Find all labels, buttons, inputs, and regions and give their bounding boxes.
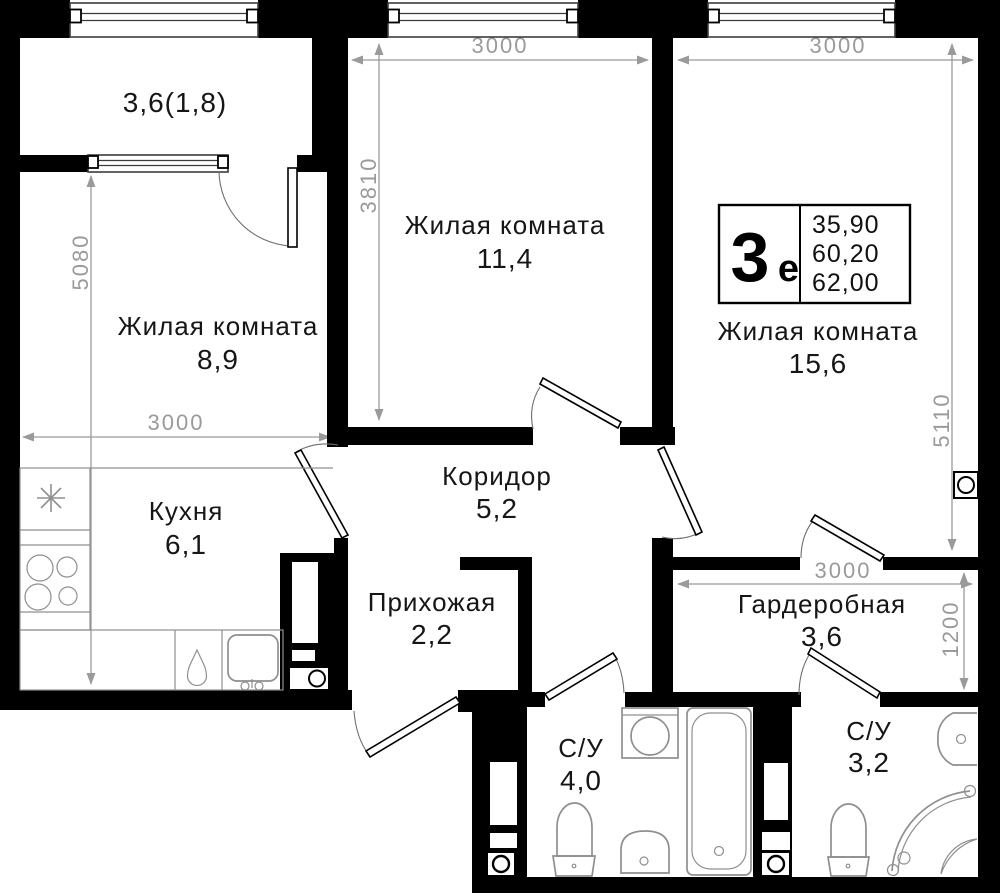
corridor-area-label: 5,2 bbox=[476, 493, 518, 524]
unit-type-suffix: е bbox=[778, 248, 799, 290]
hallway-area-label: 2,2 bbox=[411, 619, 453, 650]
wall bbox=[880, 692, 978, 707]
wall bbox=[297, 155, 330, 172]
dim-living-left-width: 3000 bbox=[148, 410, 205, 435]
shaft-niche bbox=[490, 762, 517, 825]
wall bbox=[472, 877, 1000, 893]
wall bbox=[652, 538, 673, 707]
bathroom-second-area-label: 3,2 bbox=[848, 747, 890, 778]
door-kitchen bbox=[295, 444, 348, 538]
wall bbox=[20, 155, 88, 172]
window bbox=[70, 3, 258, 37]
living-mid-name-label: Жилая комната bbox=[405, 210, 606, 240]
kitchen-area-label: 6,1 bbox=[165, 529, 207, 560]
wall bbox=[883, 557, 978, 570]
wall bbox=[327, 155, 348, 447]
hallway-name-label: Прихожая bbox=[368, 587, 496, 617]
wall bbox=[673, 557, 800, 570]
living-right-name-label: Жилая комната bbox=[718, 316, 919, 346]
wall bbox=[578, 0, 708, 38]
living-left-name-label: Жилая комната bbox=[118, 311, 319, 341]
floor-plan-drawing: 3000 3000 3810 5080 3000 5110 3000 1200 bbox=[0, 0, 1000, 893]
unit-area-total: 62,00 bbox=[812, 269, 880, 297]
wall bbox=[527, 692, 545, 707]
shaft-niche bbox=[764, 763, 788, 820]
dim-left-depth: 5080 bbox=[68, 234, 93, 291]
unit-badge: 3 е 35,90 60,20 62,00 bbox=[719, 205, 910, 303]
window bbox=[708, 3, 895, 37]
floor-plan: 3000 3000 3810 5080 3000 5110 3000 1200 bbox=[0, 0, 1000, 893]
washing-machine-icon bbox=[622, 708, 678, 758]
shaft-niche bbox=[762, 832, 790, 850]
wall bbox=[652, 38, 673, 445]
door-living-mid bbox=[532, 378, 621, 429]
toilet-icon bbox=[553, 803, 595, 876]
bathroom-main-area-label: 4,0 bbox=[560, 765, 602, 796]
kitchen-name-label: Кухня bbox=[149, 496, 224, 526]
bathtub bbox=[687, 708, 751, 875]
living-left-area-label: 8,9 bbox=[197, 344, 239, 375]
wall bbox=[0, 38, 20, 692]
corridor-name-label: Коридор bbox=[442, 461, 552, 491]
wall bbox=[978, 0, 1000, 893]
unit-area-living: 35,90 bbox=[812, 211, 880, 239]
wardrobe-area-label: 3,6 bbox=[801, 621, 843, 652]
dim-wardrobe-depth: 1200 bbox=[938, 601, 963, 658]
dim-living-right-depth: 5110 bbox=[929, 392, 954, 447]
wall bbox=[312, 38, 348, 155]
wall bbox=[0, 690, 352, 710]
door-wardrobe bbox=[801, 515, 884, 561]
dim-living-mid-depth: 3810 bbox=[356, 157, 381, 214]
bathroom-second-name-label: С/У bbox=[846, 716, 892, 746]
sink-icon bbox=[938, 713, 977, 765]
living-right-area-label: 15,6 bbox=[789, 348, 848, 379]
balcony-area-label: 3,6(1,8) bbox=[123, 87, 228, 118]
door-balcony bbox=[219, 168, 297, 247]
bathroom-main-name-label: С/У bbox=[558, 733, 604, 763]
unit-area-reduced: 60,20 bbox=[812, 240, 880, 268]
balcony-window bbox=[88, 155, 228, 172]
dim-wardrobe-width: 3000 bbox=[815, 558, 872, 583]
wall bbox=[334, 538, 348, 555]
wall bbox=[342, 427, 533, 445]
shaft-niche bbox=[292, 562, 318, 643]
toilet-icon bbox=[828, 804, 869, 876]
kitchen-sink-icon bbox=[228, 635, 278, 690]
unit-type-number: 3 bbox=[731, 218, 770, 296]
living-mid-area-label: 11,4 bbox=[477, 243, 533, 274]
door-living-right bbox=[658, 447, 702, 539]
stove-burners-icon bbox=[25, 555, 77, 610]
wall bbox=[258, 0, 388, 38]
shower-cabin-icon bbox=[888, 786, 978, 876]
door-bathroom-second bbox=[799, 648, 880, 698]
wardrobe-name-label: Гардеробная bbox=[738, 589, 906, 619]
shaft-niche bbox=[292, 650, 315, 661]
sink-icon bbox=[621, 831, 669, 873]
door-bathroom-main bbox=[545, 653, 624, 700]
wall bbox=[518, 557, 532, 693]
shaft-niche bbox=[490, 833, 517, 848]
wall-niches bbox=[290, 472, 978, 875]
door-entrance bbox=[354, 697, 460, 757]
kitchen-drop-icon bbox=[188, 650, 207, 686]
kitchen-asterisk-icon bbox=[37, 484, 65, 512]
wall bbox=[0, 0, 70, 38]
window bbox=[388, 3, 578, 37]
